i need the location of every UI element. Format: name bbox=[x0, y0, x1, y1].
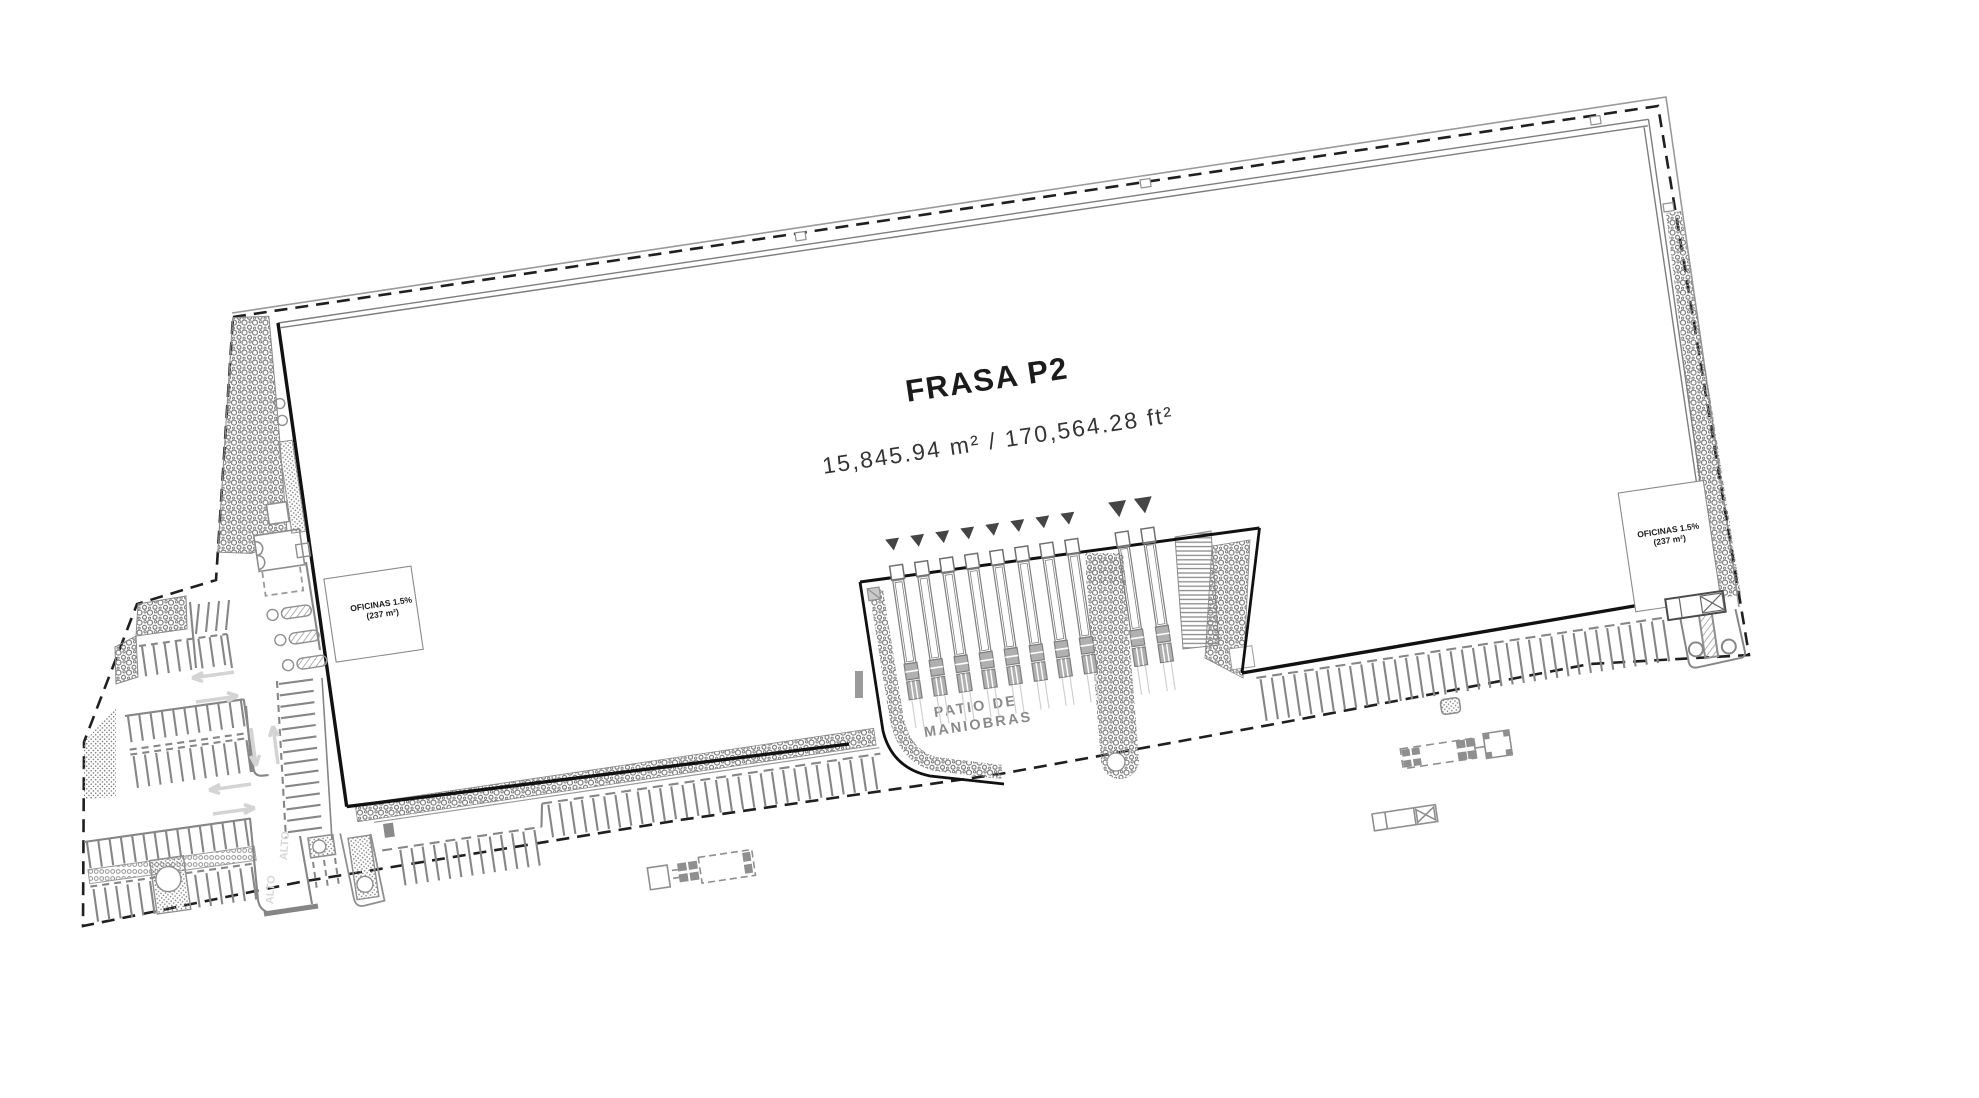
svg-text:ALTO: ALTO bbox=[264, 875, 278, 905]
svg-text:ALTO: ALTO bbox=[278, 831, 292, 861]
